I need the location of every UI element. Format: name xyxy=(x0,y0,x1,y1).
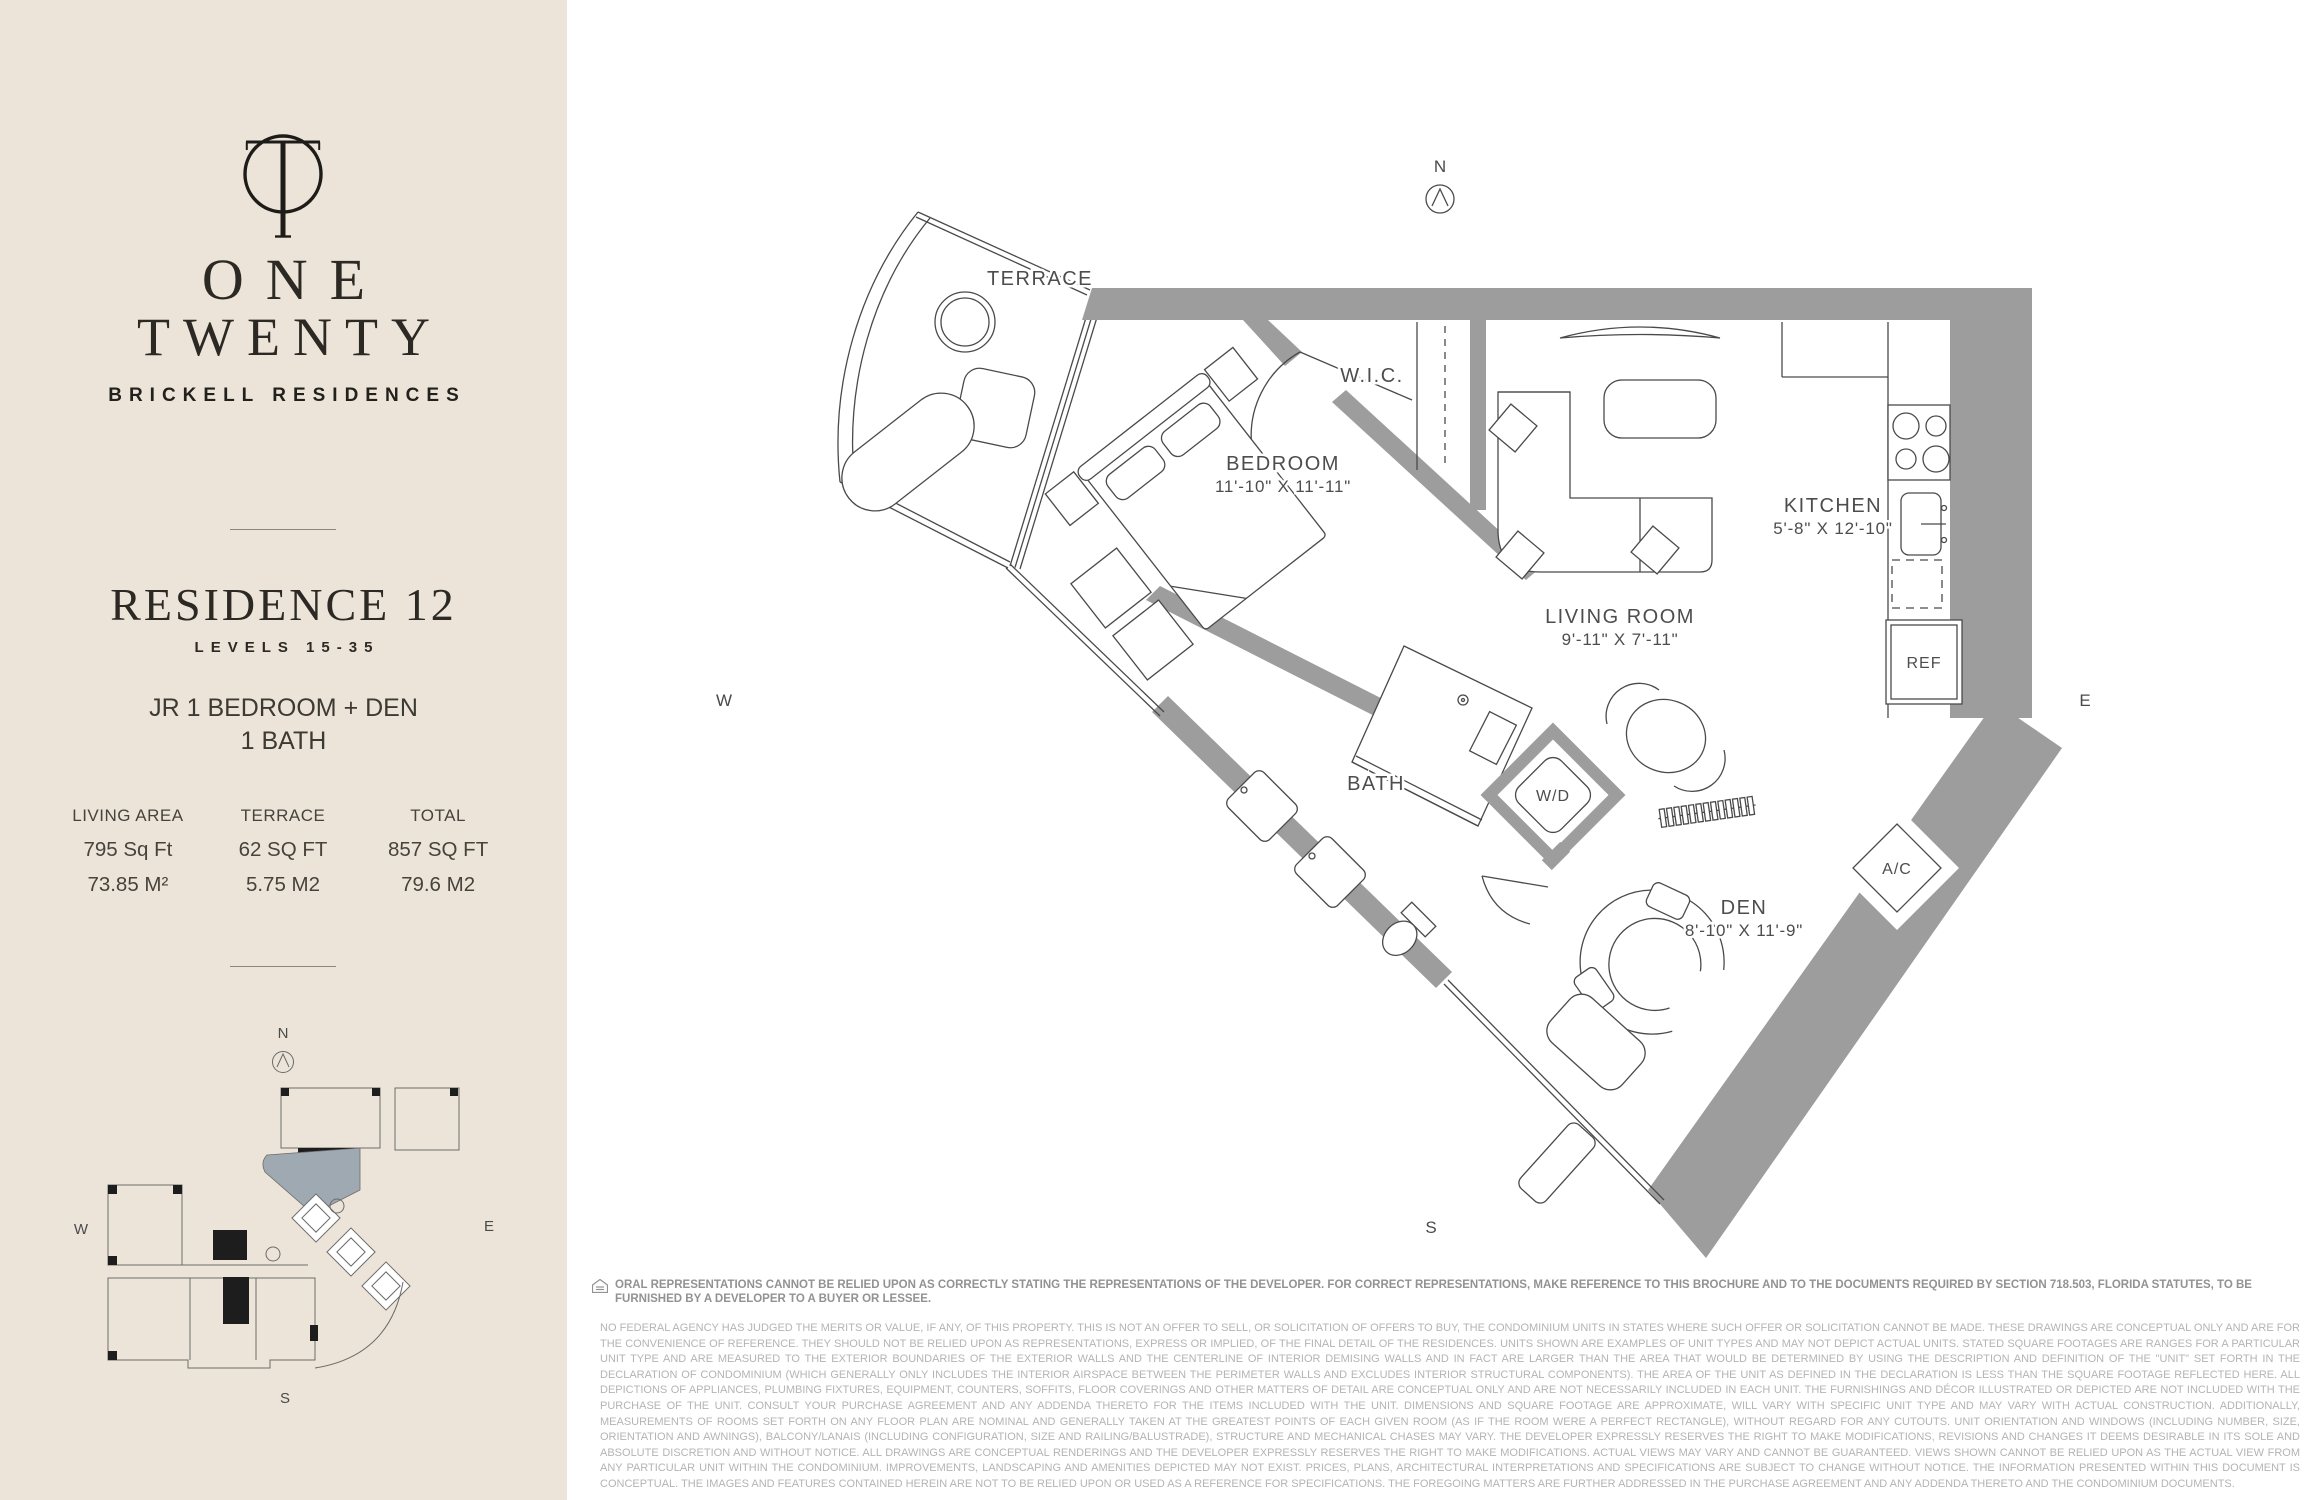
oral-representations-notice: ORAL REPRESENTATIONS CANNOT BE RELIED UP… xyxy=(592,1278,2308,1306)
terrace-area xyxy=(829,212,1090,568)
dims-kitchen: 5'-8" X 12'-10" xyxy=(1773,519,1892,538)
label-bedroom: BEDROOM xyxy=(1226,453,1340,475)
wic-kitchen-wall xyxy=(1470,320,1486,510)
dims-den: 8'-10" X 11'-9" xyxy=(1685,921,1803,940)
compass-east: E xyxy=(2079,691,2090,710)
media-console-icon xyxy=(1560,327,1720,338)
coffee-table-icon xyxy=(1604,380,1716,438)
entry-door xyxy=(1482,876,1548,924)
label-bath: BATH xyxy=(1347,773,1405,795)
floor-plan-drawing: N W E S xyxy=(0,0,2318,1500)
oral-representations-text: ORAL REPRESENTATIONS CANNOT BE RELIED UP… xyxy=(615,1278,2308,1306)
dining-table-icon xyxy=(1616,688,1716,783)
brochure-page: ONE TWENTY BRICKELL RESIDENCES RESIDENCE… xyxy=(0,0,2318,1500)
floorplan-compass-icon: N xyxy=(1426,157,1454,213)
dining-area xyxy=(1606,683,1725,791)
dims-bedroom: 11'-10" X 11'-11" xyxy=(1215,477,1351,496)
demising-wall-hatch xyxy=(1657,796,1757,827)
label-ac: A/C xyxy=(1882,861,1912,878)
dishwasher-icon xyxy=(1892,560,1942,608)
label-kitchen: KITCHEN xyxy=(1784,495,1882,517)
cooktop-icon xyxy=(1888,405,1950,480)
compass-south: S xyxy=(1425,1218,1436,1237)
wic-door-jamb xyxy=(1243,320,1302,366)
label-wd: W/D xyxy=(1536,788,1570,805)
label-wic: W.I.C. xyxy=(1340,365,1403,387)
compass-west: W xyxy=(716,691,732,710)
equal-housing-icon xyxy=(592,1279,608,1293)
console-icon xyxy=(1516,1120,1599,1207)
living-room-area xyxy=(1489,327,1720,579)
label-terrace: TERRACE xyxy=(987,268,1093,290)
north-wall xyxy=(1082,288,2032,320)
legal-disclaimer-paragraph: NO FEDERAL AGENCY HAS JUDGED THE MERITS … xyxy=(600,1321,2300,1493)
label-living-room: LIVING ROOM xyxy=(1545,606,1695,628)
dims-living-room: 9'-11" X 7'-11" xyxy=(1562,630,1679,649)
sink-icon xyxy=(1901,493,1947,555)
label-ref: REF xyxy=(1907,655,1942,672)
label-den: DEN xyxy=(1721,897,1768,919)
compass-north: N xyxy=(1434,157,1446,176)
